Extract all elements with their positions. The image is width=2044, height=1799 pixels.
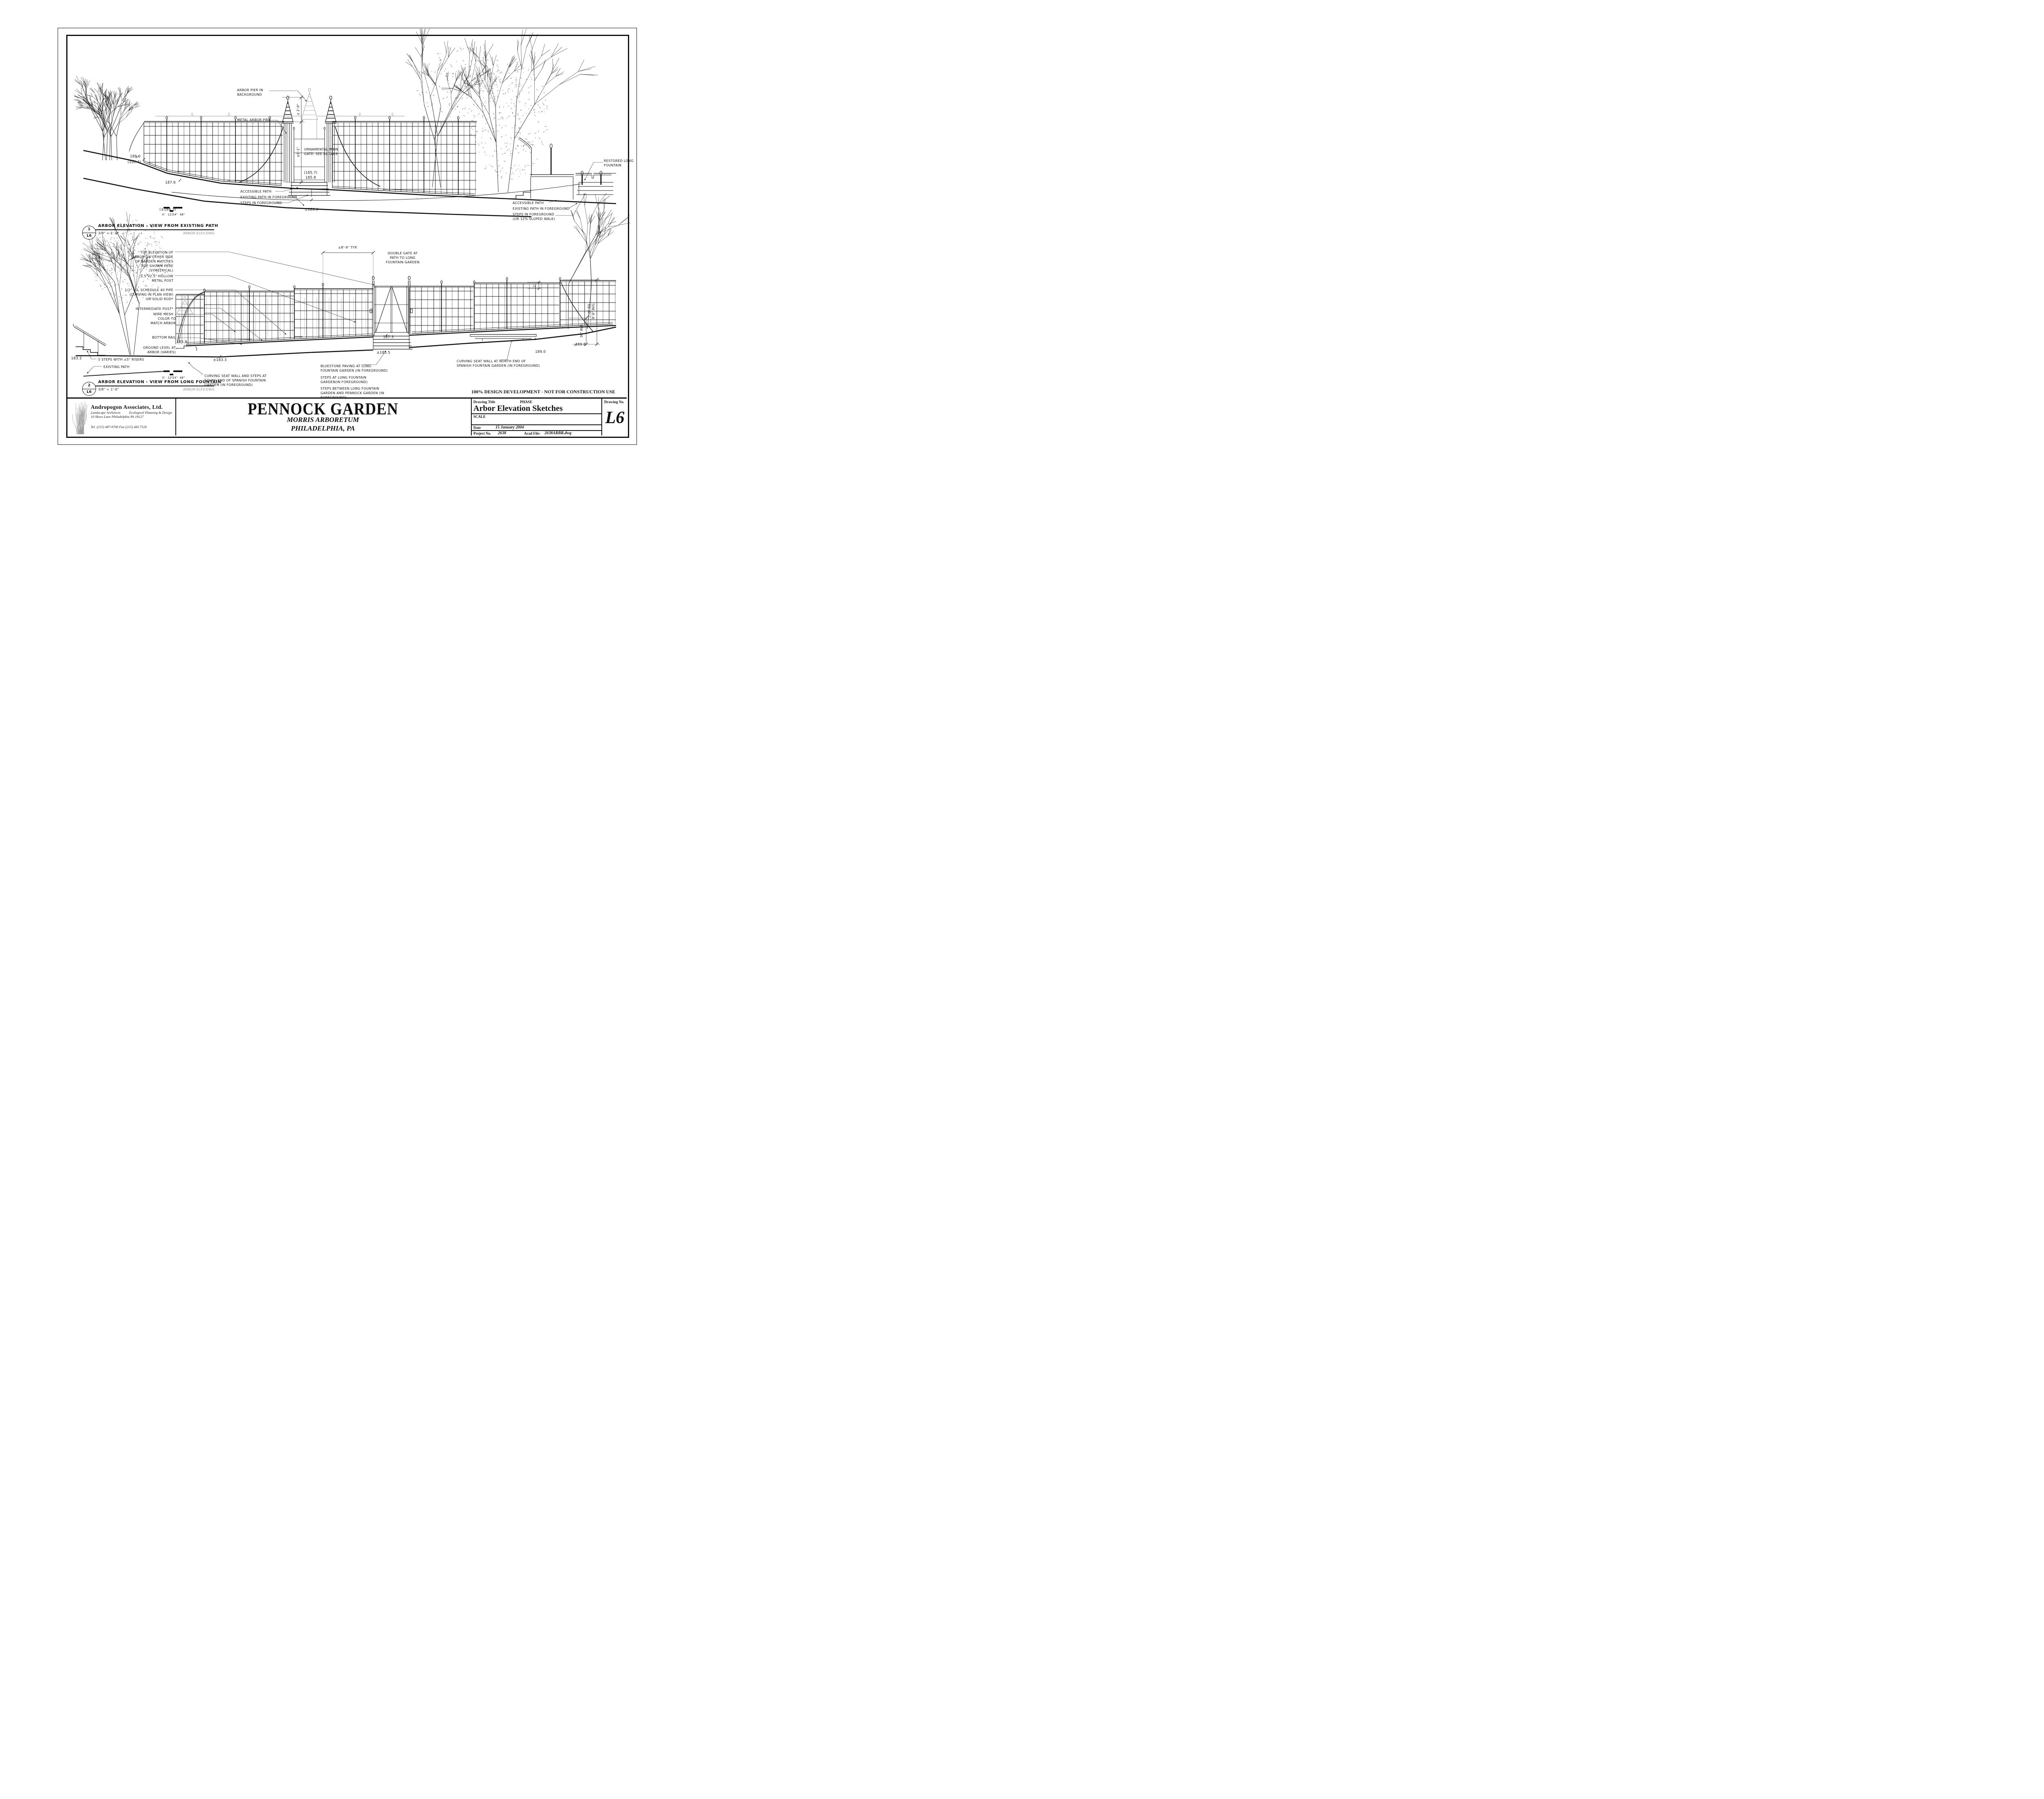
drawing2-scalebar-seg2 (170, 374, 173, 375)
drawing1-scalebar-48: 48" (180, 213, 185, 216)
firm-discipline-2: Ecological Planning & Design (129, 411, 172, 415)
drawing2-scale: 3/8" = 1'-0" (98, 388, 119, 391)
callout-hollow-metal-post: 2.5"x2.5" HOLLOW METAL POST (120, 274, 173, 283)
spot-elev2-187-3: 187.3 (383, 335, 394, 339)
callout-existing-path-left: EXISTING PATH IN FOREGROUND (240, 195, 297, 200)
drawing1-scalebar-24: 24" (173, 213, 178, 216)
callout-arbor-pier-background: ARBOR PIER IN BACKGROUND (237, 88, 263, 97)
drawing1-title: ARBOR ELEVATION - VIEW FROM EXISTING PAT… (98, 224, 218, 228)
titleband-rule-r3 (471, 430, 601, 431)
drawing1-ref-number: 1 (83, 226, 96, 233)
phase-label: PHASE (520, 400, 532, 404)
callout-5-steps: 5 STEPS WITH ±5" RISERS (98, 357, 144, 362)
spot-elev2-189-8: 189.8 (575, 343, 586, 347)
drawing2-scalebar-24: 24" (173, 376, 178, 379)
titleband-div-dwgno (601, 399, 602, 435)
callout-wire-mesh: WIRE MESH - COLOR TO MATCH ARBOR (135, 312, 176, 325)
project-facility: MORRIS ARBORETUM (287, 416, 359, 424)
callout-restored-long-fountain: RESTORED LONG FOUNTAIN (604, 159, 634, 168)
callout-existing-path-right: EXISTING PATH IN FOREGROUND (513, 206, 569, 211)
callout-bottom-rail: BOTTOM RAIL (135, 335, 176, 340)
drawing1-scalebar-seg1 (164, 207, 170, 209)
callout-seat-wall-north: CURVING SEAT WALL AT NORTH END OF SPANIS… (457, 359, 540, 368)
spot-elev-187-6: 187.6 (165, 181, 176, 185)
callout-ground-level: GROUND LEVEL AT ARBOR (VARIES) (135, 345, 176, 354)
spot-elev-185-8: 185.8 (305, 176, 316, 180)
drawing1-ref-sheet: L6 (83, 233, 96, 240)
callout-intermediate-post: INTERMEDIATE POST* (120, 307, 173, 311)
callout-existing-path-d2: EXISTING PATH (103, 365, 130, 369)
development-note: 100% DESIGN DEVELOPMENT - NOT FOR CONSTR… (471, 390, 615, 395)
spot-elev2-183-3-left: 183.3 (71, 357, 82, 361)
drawing-sheet: ARBOR PIER IN BACKGROUND METAL ARBOR PIE… (0, 0, 695, 450)
date-label: Date (473, 426, 481, 430)
project-no-label: Project No. (473, 431, 491, 435)
spot-elev2-189-0: 189.0 (535, 350, 546, 354)
spot-elev2-185-8: 185.8 (177, 340, 187, 344)
callout-metal-arbor-pier: METAL ARBOR PIER (237, 118, 271, 122)
drawing1-scalebar-0: 0' (162, 213, 165, 216)
callout-schedule40-pipe: 1/2" I.D. SCHEDULE 40 PIPE (CURVING IN P… (108, 288, 173, 301)
spot-elev-189: 189.0 (130, 155, 141, 159)
drawing2-scalebar-48: 48" (180, 376, 185, 379)
spot-elev-183-3: ±183.3 (305, 208, 318, 212)
dim-mesh-height: 36" AVG. (580, 318, 584, 343)
drawing1-ref-bubble: 1 L6 (82, 226, 96, 240)
drawing2-scalebar-seg3 (173, 370, 182, 372)
project-no-value: 2638 (498, 431, 506, 435)
callout-top-elevation: TOP ELEVATION OF ARBOR ON OTHER SIDE OF … (120, 250, 173, 273)
drawing2-ref-number: 2 (83, 382, 96, 389)
titleband-top-rule (66, 397, 627, 399)
drawing1-file-tag: ARBOR-ELEV.DWG (183, 231, 215, 235)
drawing1-scale: 3/8" = 1'-0" (98, 231, 119, 235)
titleband-div-left (175, 399, 176, 435)
callout-bluestone: BLUESTONE PAVING AT LONG FOUNTAIN GARDEN… (320, 364, 388, 373)
acad-file-label: Acad File: (524, 431, 540, 435)
firm-name: Andropogon Associates, Ltd. (91, 404, 163, 410)
scale-label: SCALE (473, 415, 486, 419)
callout-double-gate: DOUBLE GATE AT PATH TO LONG FOUNTAIN GAR… (378, 251, 427, 265)
dim-pier-height: ±9'-1" (296, 136, 300, 168)
drawing1-scalebar-seg2 (170, 210, 173, 212)
callout-steps-foreground-left: STEPS IN FOREGROUND (240, 201, 282, 205)
drawing2-scalebar-seg1 (164, 370, 170, 372)
firm-address: 10 Shurs Lane Philadelphia PA 19127 (91, 415, 143, 419)
dim-pier-top: ± 2'-0" (296, 93, 300, 126)
drawing2-scalebar-0: 0' (162, 376, 165, 379)
spot-elev-185-7: (185.7) (304, 171, 317, 175)
firm-discipline-1: Landscape Architects (91, 411, 121, 415)
drawing-title-value: Arbor Elevation Sketches (473, 404, 563, 413)
drawing-title-label: Drawing Title (473, 400, 495, 404)
drawing2-title-rule (95, 386, 214, 386)
drawing2-ref-sheet: L6 (83, 389, 96, 396)
callout-ornamental-gate: ORNAMENTAL MAIN GATE: SEE DETAILS (304, 147, 338, 156)
drawing2-title: ARBOR ELEVATION - VIEW FROM LONG FOUNTAI… (98, 380, 221, 384)
titleband-rule-r2 (471, 424, 601, 425)
callout-steps-long-fountain: STEPS AT LONG FOUNTAIN GARDEN(IN FOREGRO… (320, 375, 368, 384)
drawing2-ref-bubble: 2 L6 (82, 382, 96, 396)
drawing1-scalebar-seg3 (173, 207, 182, 209)
drawing1-title-rule (95, 229, 214, 230)
callout-steps-foreground-right: STEPS IN FOREGROUND (OR 12% SLOPED WALK) (513, 212, 555, 221)
drawing-no-label: Drawing No. (604, 400, 624, 404)
drawing2-file-tag: ARBOR-ELEV.DWG (183, 388, 215, 391)
project-location: PHILADELPHIA, PA (291, 424, 355, 433)
drawing-no-value: L6 (605, 408, 625, 428)
callout-accessible-path-right: ACCESSIBLE PATH (513, 201, 544, 205)
callout-accessible-path-left: ACCESSIBLE PATH (240, 189, 271, 194)
acad-file-value: 2638ARBR.dwg (545, 431, 572, 435)
dim-rail-gap: 1' (533, 282, 537, 290)
spot-elev2-185-5: ±185.5 (377, 351, 390, 355)
spot-elev-190-4: (190.4) (128, 160, 141, 164)
titleband-rule-r1 (471, 413, 601, 414)
spot-elev2-183-3: ±183.3 (213, 358, 226, 362)
dim-height-range: 7'-0" TO 8'-6" AVG. (587, 296, 596, 325)
date-value: 15 January 2004 (495, 425, 524, 430)
dim-bay-typ: ±8'-9" TYP. (329, 245, 366, 250)
firm-phone: Tel. (215) 487-0700 Fax (215) 483.7520 (91, 425, 147, 429)
